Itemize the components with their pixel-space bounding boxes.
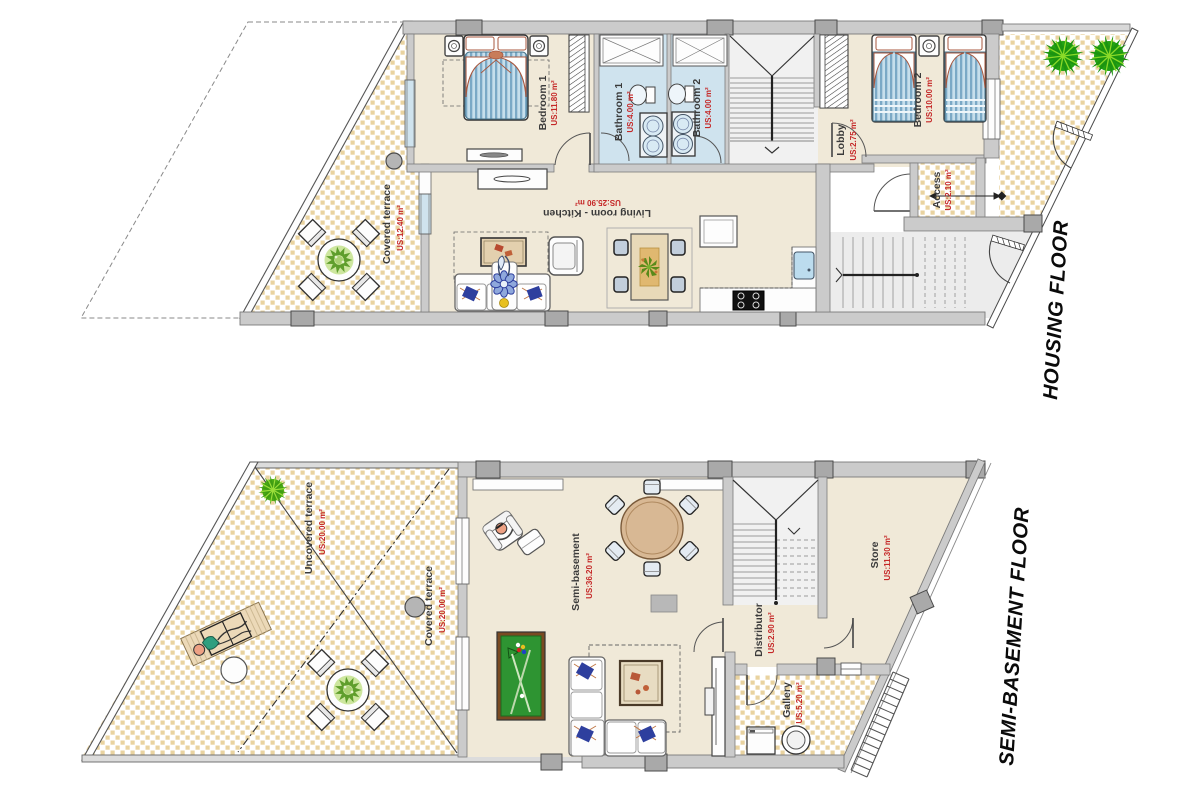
svg-text:US:20.00 m²: US:20.00 m² [438,587,447,633]
svg-text:Bedroom 1: Bedroom 1 [537,75,549,130]
svg-text:US:12.40 m²: US:12.40 m² [396,205,405,251]
svg-text:US:4.00 m²: US:4.00 m² [704,87,713,129]
svg-text:US:25.90 m²: US:25.90 m² [575,198,621,207]
svg-text:US:2.10 m²: US:2.10 m² [944,169,953,211]
svg-text:Covered terrace: Covered terrace [423,566,435,646]
svg-text:Access: Access [931,171,943,208]
svg-text:US:2.90 m²: US:2.90 m² [767,612,776,654]
svg-text:US:4.00 m²: US:4.00 m² [626,91,635,133]
svg-text:Store: Store [869,541,881,568]
svg-text:Gallery: Gallery [781,682,793,718]
svg-text:Distributor: Distributor [753,603,765,657]
svg-text:Semi-basement: Semi-basement [570,533,582,611]
svg-text:US:36.20 m²: US:36.20 m² [585,553,594,599]
svg-text:Bedroom 2: Bedroom 2 [912,72,924,127]
svg-text:Covered terrace: Covered terrace [381,184,393,264]
svg-text:HOUSING FLOOR: HOUSING FLOOR [1039,220,1073,401]
svg-text:Bathroom 2: Bathroom 2 [691,79,703,138]
svg-text:US:11.80 m²: US:11.80 m² [550,80,559,126]
svg-text:US:5.20 m²: US:5.20 m² [795,682,804,724]
svg-text:SEMI-BASEMENT FLOOR: SEMI-BASEMENT FLOOR [995,506,1034,766]
svg-text:US:2.75 m²: US:2.75 m² [849,119,858,161]
svg-text:Bathroom 1: Bathroom 1 [613,83,625,142]
svg-text:US:20.00 m²: US:20.00 m² [318,509,327,555]
svg-text:US:11.30 m²: US:11.30 m² [883,535,892,581]
svg-text:Uncovered terrace: Uncovered terrace [303,482,315,574]
svg-text:US:10.00 m²: US:10.00 m² [925,77,934,123]
svg-text:Lobby: Lobby [835,124,847,156]
svg-text:Living room - Kitchen: Living room - Kitchen [543,207,651,219]
